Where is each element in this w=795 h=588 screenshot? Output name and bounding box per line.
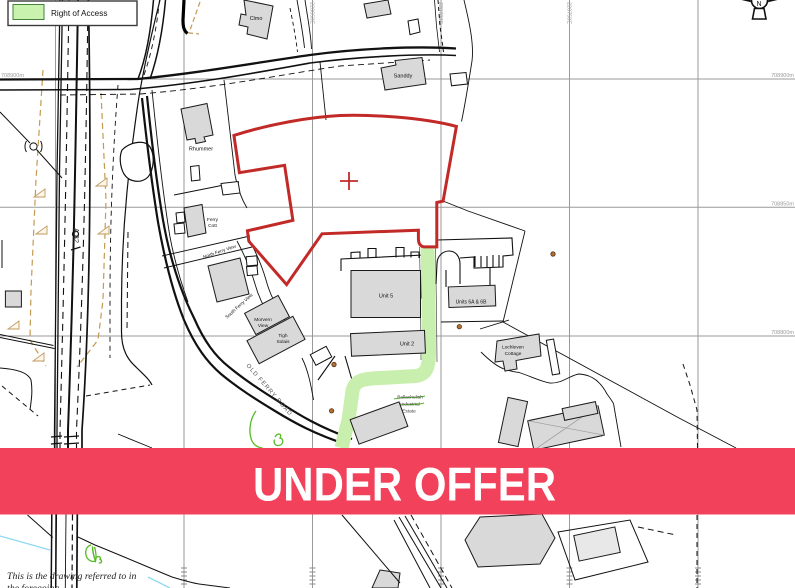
svg-text:This is the drawing referred t: This is the drawing referred to in <box>7 571 136 582</box>
svg-text:Cottage: Cottage <box>505 351 522 357</box>
svg-text:A 82: A 82 <box>72 228 81 243</box>
svg-text:220650E: 220650E <box>309 2 315 24</box>
svg-text:Unit 2: Unit 2 <box>400 342 414 348</box>
svg-text:Rhummer: Rhummer <box>189 147 213 153</box>
svg-text:708850m: 708850m <box>771 201 794 207</box>
svg-text:Tigh: Tigh <box>278 333 287 339</box>
svg-text:Sanddy: Sanddy <box>394 74 413 80</box>
svg-text:Morvern: Morvern <box>254 317 272 323</box>
svg-text:Units 6A & 6B: Units 6A & 6B <box>456 300 488 306</box>
svg-text:Unit 5: Unit 5 <box>379 294 393 300</box>
svg-text:Clmo: Clmo <box>250 16 263 22</box>
svg-text:220750E: 220750E <box>566 2 572 24</box>
svg-text:the foregoing: the foregoing <box>7 583 59 588</box>
svg-text:Estate: Estate <box>402 409 416 415</box>
svg-text:Ferry: Ferry <box>207 217 219 223</box>
svg-text:Lochleven: Lochleven <box>502 345 524 351</box>
svg-text:Right of Access: Right of Access <box>51 9 107 18</box>
svg-text:UNDER OFFER: UNDER OFFER <box>253 458 556 511</box>
svg-text:Cott: Cott <box>208 223 217 229</box>
svg-text:Solais: Solais <box>276 339 290 345</box>
svg-text:N: N <box>756 1 761 8</box>
svg-text:708900m: 708900m <box>771 73 794 79</box>
svg-text:708800m: 708800m <box>771 330 794 336</box>
svg-text:Industrial: Industrial <box>400 402 419 408</box>
svg-text:Ballachulish: Ballachulish <box>397 395 423 401</box>
svg-text:708900m: 708900m <box>1 73 24 79</box>
svg-text:View: View <box>258 323 269 329</box>
